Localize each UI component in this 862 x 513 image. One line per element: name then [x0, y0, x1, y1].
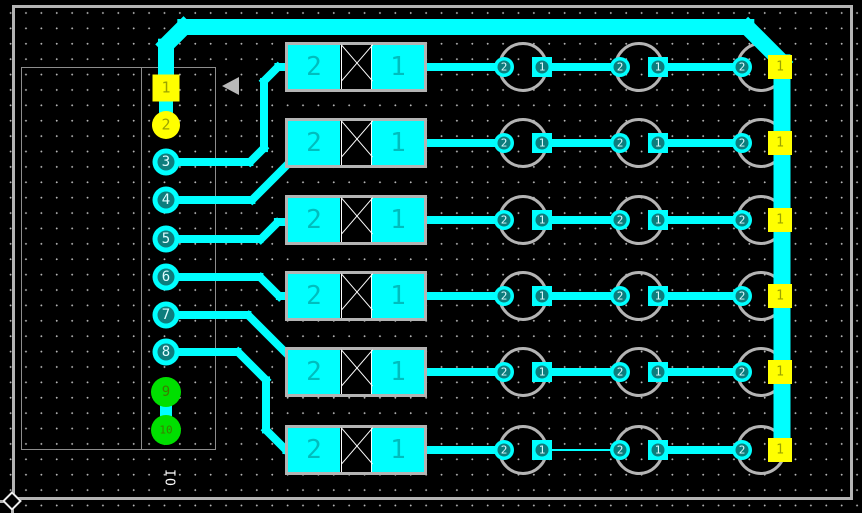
- pcb-canvas[interactable]: 2121212121212121212121212121212121212121…: [0, 0, 862, 513]
- board-outline: [12, 5, 853, 500]
